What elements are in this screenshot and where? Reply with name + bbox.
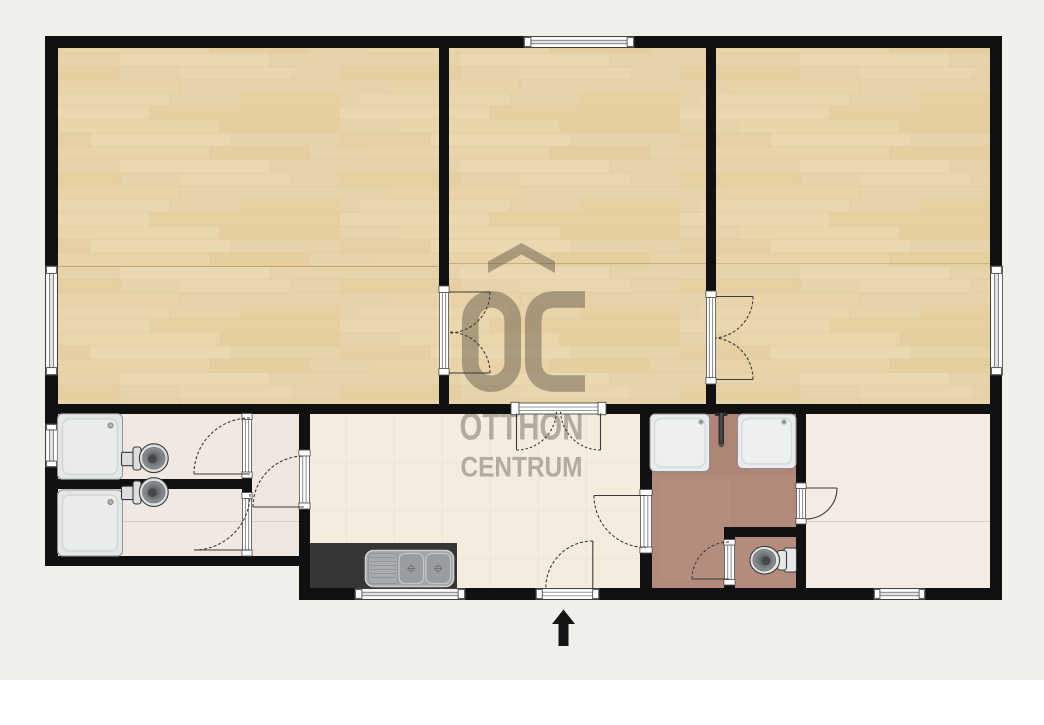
svg-text:CENTRUM: CENTRUM — [461, 452, 583, 484]
